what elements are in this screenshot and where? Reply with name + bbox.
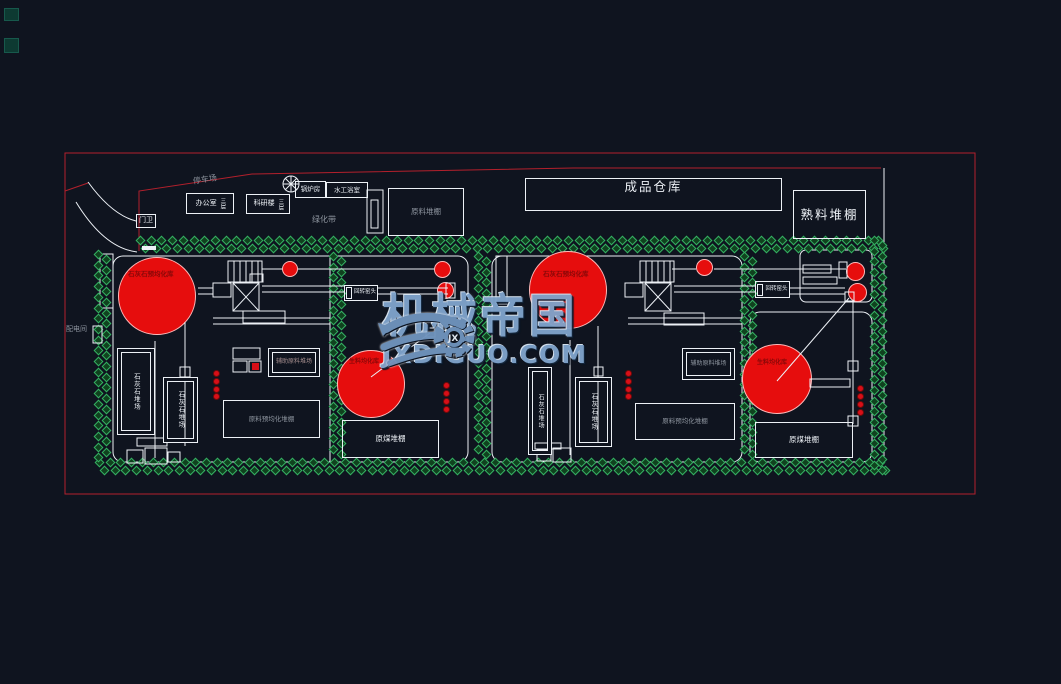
coal-shed-box-right: 原煤堆棚	[755, 422, 853, 458]
preblending-shed-box-left: 原料预均化堆棚	[223, 400, 320, 438]
watermark: JX 机械帝国 JXDIGUO.COM	[378, 293, 587, 369]
kiln-head-box-left: 回转窑头	[344, 285, 378, 301]
red-dot-marker	[625, 393, 632, 400]
limestone-yard-box: 石灰石堆场	[528, 367, 552, 455]
kiln-head-glyph	[757, 284, 763, 296]
kiln-head-box-right: 回转窑头	[755, 281, 790, 298]
cad-canvas: 门卫 办公室 三层 科研楼 三层 锅炉房 水工浴室 原料堆棚 成品仓库 熟料堆棚…	[0, 0, 1061, 684]
red-dot-marker	[213, 393, 220, 400]
aux-material-yard-label: 辅助原料堆场	[276, 359, 312, 365]
boiler-room-label: 锅炉房	[301, 186, 321, 193]
red-dot-marker	[857, 409, 864, 416]
office-box: 办公室 三层	[186, 193, 234, 214]
limestone-yard-box: 石灰石堆场	[163, 377, 198, 443]
svg-text:JX: JX	[447, 334, 458, 344]
red-dot-marker	[857, 385, 864, 392]
clinker-shed-box: 熟料堆棚	[793, 190, 866, 239]
limestone-yard-box: 石灰石堆场	[575, 377, 612, 447]
red-dot-marker	[213, 378, 220, 385]
finished-warehouse-label: 成品仓库	[624, 180, 682, 193]
raw-material-shed-box: 原料堆棚	[388, 188, 464, 236]
red-dot-marker	[857, 393, 864, 400]
limestone-preblend-label-left: 石灰石预均化库	[128, 271, 174, 278]
bath-house-label: 水工浴室	[334, 187, 360, 194]
clinker-shed-label: 熟料堆棚	[800, 208, 858, 221]
boiler-room-box: 锅炉房	[295, 181, 326, 198]
red-dot-marker	[213, 386, 220, 393]
research-floors-label: 三层	[277, 199, 283, 210]
office-floors-label: 三层	[219, 198, 225, 209]
red-dot-marker	[443, 398, 450, 405]
aux-material-yard-label: 辅助原料堆场	[690, 361, 726, 367]
aux-material-yard-box-right: 辅助原料堆场	[682, 348, 735, 380]
raw-material-shed-label: 原料堆棚	[411, 208, 441, 216]
research-building-label: 科研楼	[254, 200, 275, 207]
research-building-box: 科研楼 三层	[246, 194, 290, 214]
preblending-shed-label: 原料预均化堆棚	[249, 416, 295, 423]
limestone-yard-label: 石灰石堆场	[590, 393, 597, 431]
power-room-label: 配电间	[66, 326, 87, 333]
kiln-head-label: 回转窑头	[354, 290, 376, 296]
red-dot-marker	[625, 378, 632, 385]
green-belt-label: 绿化带	[312, 216, 336, 224]
red-dot-marker	[443, 406, 450, 413]
red-dot-marker	[213, 370, 220, 377]
limestone-yard-box: 石灰石堆场	[117, 348, 155, 435]
office-label: 办公室	[196, 200, 217, 207]
gate-guard-label: 门卫	[139, 217, 153, 224]
limestone-yard-label: 石灰石堆场	[537, 394, 543, 429]
finished-warehouse-box: 成品仓库	[525, 178, 782, 211]
gate-guard-box: 门卫	[136, 214, 156, 228]
aux-material-yard-box-left: 辅助原料堆场	[268, 348, 320, 377]
coal-shed-label: 原煤堆棚	[376, 435, 406, 443]
kiln-head-label: 回转窑头	[765, 287, 787, 293]
red-dot-marker	[443, 390, 450, 397]
winged-gear-icon: JX	[378, 293, 486, 389]
limestone-yard-label: 石灰石堆场	[133, 373, 140, 411]
red-dot-marker	[857, 401, 864, 408]
raw-meal-silo-label-right: 生料均化库	[757, 360, 787, 366]
raw-meal-silo-label-left: 生料均化库	[349, 359, 379, 365]
preblending-shed-label: 原料预均化堆棚	[662, 418, 708, 425]
red-dot-marker	[625, 386, 632, 393]
limestone-yard-label: 石灰石堆场	[177, 391, 184, 429]
coal-shed-box-left: 原煤堆棚	[342, 420, 439, 458]
preblending-shed-box-right: 原料预均化堆棚	[635, 403, 735, 440]
coal-shed-label: 原煤堆棚	[789, 436, 819, 444]
red-dot-marker	[625, 370, 632, 377]
limestone-preblend-label-right: 石灰石预均化库	[543, 271, 589, 278]
bath-house-box: 水工浴室	[326, 182, 368, 198]
kiln-head-glyph	[346, 287, 352, 299]
